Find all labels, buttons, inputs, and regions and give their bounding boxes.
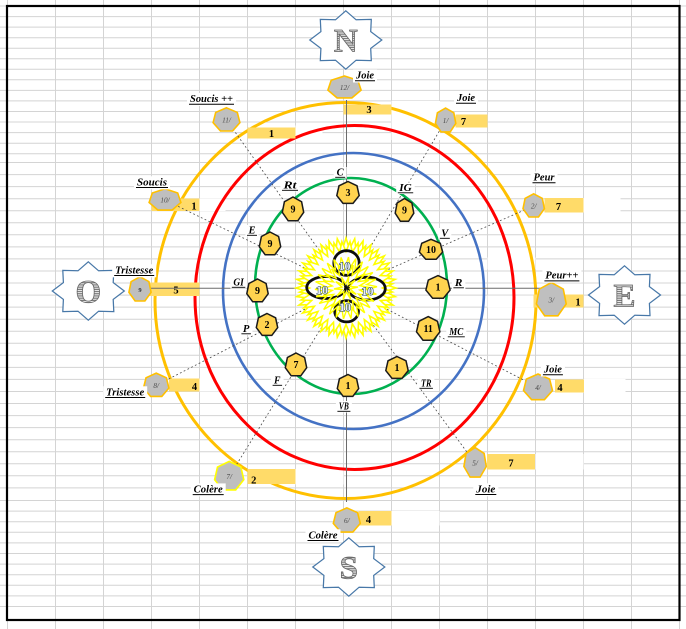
svg-text:10: 10 bbox=[339, 259, 351, 273]
svg-text:Joie: Joie bbox=[475, 484, 496, 495]
svg-text:Soucis ++: Soucis ++ bbox=[190, 94, 233, 105]
svg-text:Colère: Colère bbox=[194, 484, 223, 495]
svg-text:9: 9 bbox=[291, 205, 296, 216]
svg-text:7: 7 bbox=[508, 459, 513, 470]
svg-text:1: 1 bbox=[395, 363, 400, 374]
svg-text:Tristesse: Tristesse bbox=[115, 265, 153, 276]
svg-text:2: 2 bbox=[251, 475, 256, 486]
svg-text:Peur: Peur bbox=[534, 173, 556, 184]
svg-text:4: 4 bbox=[366, 515, 372, 526]
svg-text:7: 7 bbox=[556, 202, 561, 213]
svg-text:S: S bbox=[340, 551, 358, 587]
svg-text:5: 5 bbox=[173, 286, 178, 297]
svg-text:Joie: Joie bbox=[355, 71, 374, 82]
svg-text:Soucis: Soucis bbox=[137, 177, 167, 188]
svg-text:7: 7 bbox=[461, 117, 466, 128]
svg-text:10: 10 bbox=[426, 245, 436, 256]
svg-text:9: 9 bbox=[268, 239, 273, 250]
svg-text:3: 3 bbox=[366, 105, 371, 116]
svg-text:10: 10 bbox=[362, 284, 374, 298]
svg-text:1: 1 bbox=[191, 201, 196, 212]
svg-text:6/: 6/ bbox=[344, 517, 351, 525]
svg-text:11/: 11/ bbox=[222, 116, 232, 124]
svg-text:7: 7 bbox=[294, 360, 299, 371]
svg-text:3: 3 bbox=[346, 188, 351, 199]
svg-text:Joie: Joie bbox=[456, 93, 475, 104]
svg-text:2: 2 bbox=[265, 320, 270, 331]
svg-text:Tristesse: Tristesse bbox=[106, 387, 144, 398]
svg-text:3/: 3/ bbox=[548, 296, 556, 304]
svg-text:9: 9 bbox=[402, 206, 407, 217]
svg-text:1: 1 bbox=[269, 129, 274, 140]
svg-text:N: N bbox=[334, 24, 358, 60]
svg-text:10: 10 bbox=[316, 283, 328, 297]
svg-text:1: 1 bbox=[436, 283, 441, 294]
svg-text:Joie: Joie bbox=[543, 365, 562, 376]
svg-text:O: O bbox=[75, 275, 101, 311]
svg-text:1: 1 bbox=[346, 381, 351, 392]
svg-text:11: 11 bbox=[423, 324, 432, 335]
svg-text:E: E bbox=[613, 279, 635, 315]
svg-text:4: 4 bbox=[192, 382, 198, 393]
svg-text:9: 9 bbox=[255, 286, 260, 297]
svg-text:4: 4 bbox=[557, 383, 563, 394]
svg-text:10: 10 bbox=[339, 300, 351, 314]
svg-text:1: 1 bbox=[575, 297, 580, 308]
svg-text:12/: 12/ bbox=[340, 84, 350, 92]
svg-text:10/: 10/ bbox=[160, 196, 170, 204]
svg-text:Peur++: Peur++ bbox=[545, 271, 578, 282]
svg-text:Colère: Colère bbox=[309, 530, 338, 541]
